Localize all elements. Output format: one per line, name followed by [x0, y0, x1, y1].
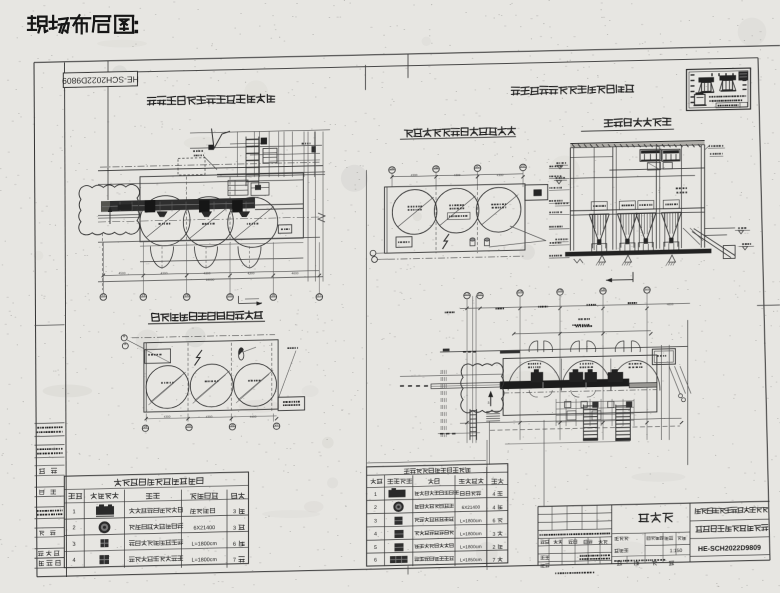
svg-text:6: 6 — [493, 518, 496, 524]
svg-text:HE-SCH2022D9809: HE-SCH2022D9809 — [62, 75, 139, 87]
svg-text:2: 2 — [374, 505, 377, 511]
svg-text:6X21400: 6X21400 — [462, 505, 481, 510]
svg-text:2: 2 — [72, 525, 75, 531]
svg-text:5: 5 — [374, 545, 377, 551]
svg-text:3: 3 — [233, 509, 236, 515]
svg-text:6X21400: 6X21400 — [193, 525, 215, 531]
svg-text:C2: C2 — [478, 292, 482, 296]
svg-text:4400: 4400 — [250, 415, 257, 419]
svg-text:L=1800cm: L=1800cm — [460, 544, 482, 549]
svg-text:26: 26 — [231, 423, 235, 427]
svg-text:6: 6 — [374, 558, 377, 564]
svg-text:25: 25 — [187, 424, 191, 428]
svg-text:4000: 4000 — [667, 302, 674, 306]
svg-text:4300: 4300 — [164, 415, 171, 419]
svg-text:7: 7 — [233, 558, 236, 564]
svg-text:4300: 4300 — [248, 271, 255, 275]
svg-text:4500: 4500 — [119, 271, 126, 275]
svg-text:22: 22 — [101, 293, 105, 297]
svg-text:4: 4 — [493, 492, 496, 498]
svg-text:1:150: 1:150 — [670, 548, 683, 554]
svg-text:24: 24 — [144, 425, 148, 429]
svg-text:4300: 4300 — [206, 415, 213, 419]
svg-text:6: 6 — [233, 542, 236, 548]
svg-text:18000: 18000 — [206, 278, 215, 282]
svg-text:L=1850cm: L=1850cm — [460, 557, 482, 562]
svg-text:4300: 4300 — [454, 173, 461, 177]
svg-text:4300: 4300 — [411, 173, 418, 177]
svg-text:26: 26 — [271, 293, 275, 297]
svg-text:4: 4 — [493, 505, 496, 511]
svg-text:25: 25 — [228, 293, 232, 297]
svg-text:4: 4 — [72, 558, 75, 564]
svg-text:C6: C6 — [601, 287, 605, 291]
svg-text:3: 3 — [374, 518, 377, 524]
svg-text:27: 27 — [317, 293, 321, 297]
svg-text:HE-SCH2022D9809: HE-SCH2022D9809 — [698, 545, 761, 553]
svg-text:C1: C1 — [465, 292, 469, 296]
svg-text:1: 1 — [374, 492, 377, 498]
svg-text:L=1800cm: L=1800cm — [460, 531, 482, 536]
svg-text:3: 3 — [72, 542, 75, 548]
svg-text:7: 7 — [493, 558, 496, 564]
svg-text:3: 3 — [488, 401, 490, 405]
svg-text:2: 2 — [493, 545, 496, 551]
svg-text:L=1800cm: L=1800cm — [460, 518, 482, 523]
svg-text:2D: 2D — [521, 164, 526, 168]
svg-text:C7: C7 — [645, 286, 649, 290]
svg-text:B: B — [123, 334, 125, 338]
svg-text:C4: C4 — [518, 289, 522, 293]
svg-text:4300: 4300 — [204, 271, 211, 275]
svg-text:4600: 4600 — [292, 271, 299, 275]
svg-text:L=1800cm: L=1800cm — [192, 557, 218, 564]
svg-text:4: 4 — [374, 532, 377, 538]
svg-text:C5: C5 — [558, 288, 562, 292]
svg-text:23: 23 — [141, 293, 145, 297]
svg-text:2C: 2C — [475, 165, 480, 169]
svg-text:1: 1 — [72, 509, 75, 515]
svg-text:L=1800cm: L=1800cm — [192, 541, 218, 548]
svg-text:27: 27 — [275, 423, 279, 427]
svg-text:3: 3 — [493, 532, 496, 538]
svg-text:24: 24 — [185, 293, 189, 297]
svg-text:4300: 4300 — [161, 271, 168, 275]
svg-text:4300: 4300 — [497, 173, 504, 177]
svg-text:3: 3 — [233, 525, 236, 531]
